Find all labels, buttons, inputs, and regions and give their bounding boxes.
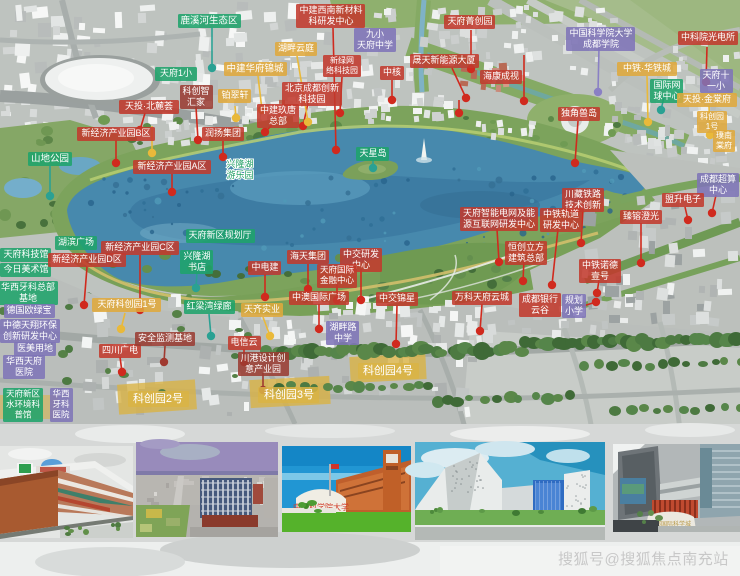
svg-text:中德天翔环保: 中德天翔环保 [3,319,57,330]
svg-text:医院: 医院 [52,410,70,420]
svg-text:中铁诺德: 中铁诺德 [582,259,618,270]
svg-text:电信云: 电信云 [230,336,257,347]
svg-text:中铁轨道: 中铁轨道 [543,208,579,219]
svg-text:铂翠轩: 铂翠轩 [221,89,248,100]
svg-text:中科院光电所: 中科院光电所 [681,31,735,42]
svg-text:成都超算: 成都超算 [700,173,736,184]
svg-text:新经济产业园A区: 新经济产业园A区 [137,160,206,171]
svg-text:中铁·华铁城: 中铁·华铁城 [623,62,671,73]
svg-text:1号: 1号 [706,122,718,131]
svg-text:书店: 书店 [188,261,206,272]
svg-text:山地公园: 山地公园 [31,153,69,165]
svg-text:湖滨广场: 湖滨广场 [58,236,94,247]
svg-text:中建玖唐: 中建玖唐 [260,104,296,115]
svg-text:球中心: 球中心 [653,90,680,101]
svg-text:天投·北麓荟: 天投·北麓荟 [125,100,173,111]
svg-text:鹿溪河生态区: 鹿溪河生态区 [180,15,238,27]
svg-text:游乐园: 游乐园 [226,169,253,180]
svg-text:天府十: 天府十 [702,69,729,80]
svg-text:德国欧绿宝: 德国欧绿宝 [6,304,51,315]
svg-text:新经济产业园B区: 新经济产业园B区 [81,127,150,138]
svg-text:晟天新能源大厦: 晟天新能源大厦 [412,54,475,65]
svg-text:今日美术馆: 今日美术馆 [3,263,48,274]
svg-text:红梁湾绿廊: 红梁湾绿廊 [186,300,231,311]
svg-text:科技园: 科技园 [298,93,325,104]
svg-text:恒创立方: 恒创立方 [508,241,544,252]
svg-text:规划: 规划 [565,294,583,305]
svg-text:建筑总部: 建筑总部 [508,252,544,263]
svg-text:川港设计创: 川港设计创 [240,352,285,363]
svg-text:源互联网研发中心: 源互联网研发中心 [463,218,535,229]
svg-text:中交研发: 中交研发 [343,248,379,259]
svg-text:天星岛: 天星岛 [359,147,386,158]
svg-text:九小: 九小 [366,29,384,39]
svg-text:天府国际: 天府国际 [320,265,355,275]
svg-text:四川广电: 四川广电 [102,344,138,355]
svg-text:湖畔云庭: 湖畔云庭 [278,42,314,53]
svg-text:研发中心: 研发中心 [543,219,579,230]
svg-text:成都银行: 成都银行 [522,293,558,304]
svg-text:成都学院: 成都学院 [583,38,619,49]
svg-text:科创智: 科创智 [182,85,209,96]
svg-text:海康成视: 海康成视 [483,70,519,81]
svg-text:基地: 基地 [19,292,37,303]
svg-text:天府中学: 天府中学 [357,39,393,50]
svg-text:云谷: 云谷 [531,305,549,315]
svg-text:壹号: 壹号 [591,270,609,281]
svg-text:华西牙科总部: 华西牙科总部 [1,281,55,292]
svg-text:意产业园: 意产业园 [245,363,281,374]
svg-text:华西: 华西 [52,389,69,399]
svg-text:金融中心: 金融中心 [320,275,355,285]
svg-text:中电建: 中电建 [251,261,278,272]
svg-text:天府新区规划厅: 天府新区规划厅 [188,229,251,240]
svg-text:中国科学院大学: 中国科学院大学 [569,27,632,38]
svg-text:新绿网: 新绿网 [330,55,354,65]
svg-text:中心: 中心 [709,184,727,195]
svg-text:中核: 中核 [383,66,401,77]
svg-text:新经济产业园C区: 新经济产业园C区 [105,241,175,252]
svg-text:牙科: 牙科 [52,399,70,409]
svg-text:络科技园: 络科技园 [326,65,358,75]
svg-text:川藏铁路: 川藏铁路 [565,188,601,199]
svg-text:科创园4号: 科创园4号 [363,363,413,377]
svg-text:普馆: 普馆 [14,410,31,420]
svg-text:天府菁创园: 天府菁创园 [447,15,492,26]
svg-text:兴隆湖: 兴隆湖 [226,158,253,169]
svg-text:天府智能电网及能: 天府智能电网及能 [463,207,535,218]
svg-text:中建西南新材料: 中建西南新材料 [299,4,362,15]
svg-text:汇家: 汇家 [187,96,205,107]
svg-text:科创园3号: 科创园3号 [264,387,314,401]
svg-text:小学: 小学 [565,305,583,316]
svg-text:天齐实业: 天齐实业 [244,303,280,314]
svg-text:兴隆湖: 兴隆湖 [183,250,210,261]
svg-text:科研发中心: 科研发中心 [308,15,353,26]
svg-text:天府科创园1号: 天府科创园1号 [97,298,156,309]
svg-text:中澳国际广场: 中澳国际广场 [292,291,346,302]
svg-text:天府新区: 天府新区 [6,389,41,399]
svg-text:中建华府锦城: 中建华府锦城 [226,63,284,75]
svg-text:臻镕澄光: 臻镕澄光 [623,210,659,221]
svg-text:海天集团: 海天集团 [290,250,326,261]
svg-text:安全监测基地: 安全监测基地 [138,332,192,343]
svg-text:湖畔路: 湖畔路 [329,321,356,332]
svg-text:国际网: 国际网 [653,80,680,90]
svg-text:创新研发中心: 创新研发中心 [3,330,57,341]
svg-text:天投·金棠府: 天投·金棠府 [683,93,731,104]
svg-text:华西天府: 华西天府 [6,355,42,366]
svg-text:棠府: 棠府 [716,140,732,150]
svg-text:科创园2号: 科创园2号 [133,391,183,405]
svg-text:医美用地: 医美用地 [17,342,53,353]
svg-text:水环境科: 水环境科 [6,399,41,409]
svg-text:医院: 医院 [15,366,33,377]
svg-text:北京成都创新: 北京成都创新 [285,82,339,93]
svg-text:天府科技馆: 天府科技馆 [3,248,48,259]
svg-text:万科天府云城: 万科天府云城 [455,291,509,302]
svg-text:天府1小: 天府1小 [160,67,192,78]
svg-text:独角兽岛: 独角兽岛 [561,107,597,118]
svg-text:璞南: 璞南 [716,130,732,140]
svg-text:中交锦星: 中交锦星 [379,292,415,303]
svg-text:盟升电子: 盟升电子 [665,193,701,204]
svg-text:新经济产业园D区: 新经济产业园D区 [52,253,122,264]
svg-text:润扬集团: 润扬集团 [205,127,241,138]
svg-text:一小: 一小 [707,81,725,91]
svg-text:中学: 中学 [334,332,352,343]
svg-text:总部: 总部 [269,115,287,126]
svg-text:科创园: 科创园 [700,111,724,121]
